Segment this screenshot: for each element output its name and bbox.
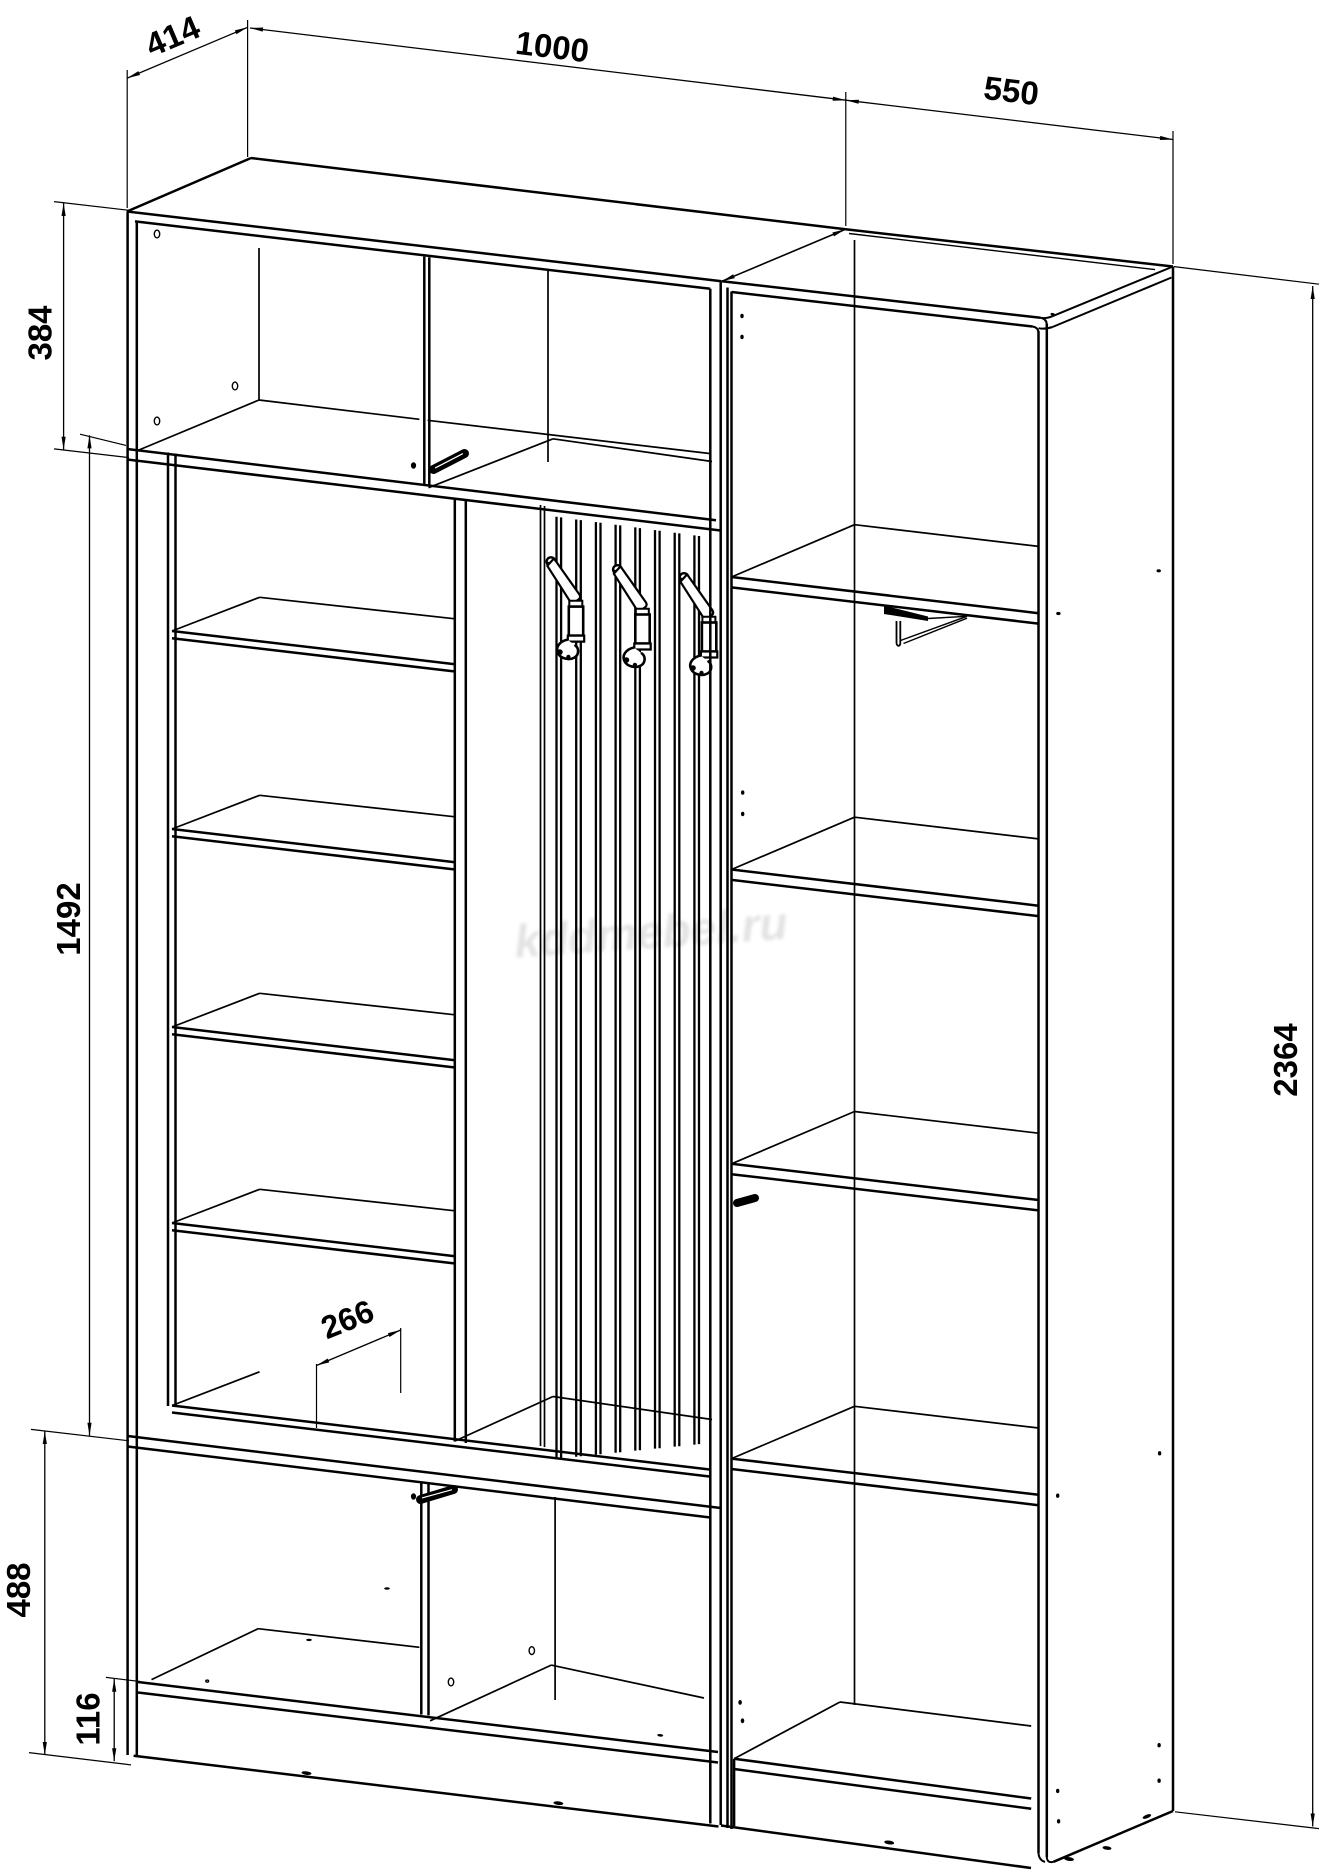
svg-text:414: 414: [140, 8, 206, 64]
svg-text:384: 384: [22, 305, 59, 361]
svg-text:266: 266: [316, 1293, 379, 1346]
svg-text:2364: 2364: [1267, 1023, 1304, 1097]
svg-text:550: 550: [982, 69, 1041, 112]
svg-text:116: 116: [70, 1692, 107, 1745]
svg-text:1492: 1492: [50, 882, 87, 955]
svg-text:1000: 1000: [514, 24, 591, 70]
svg-text:kddmebel.ru: kddmebel.ru: [513, 897, 789, 968]
svg-text:488: 488: [0, 1562, 37, 1617]
